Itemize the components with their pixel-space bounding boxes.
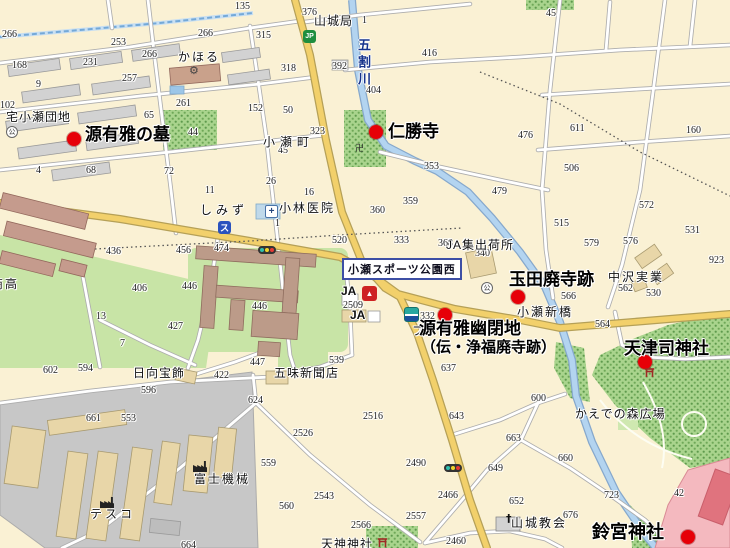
map-number-label: 446 [252, 302, 267, 313]
map-number-label: 447 [250, 358, 265, 369]
map-number-label: 474 [214, 244, 229, 255]
map-number-label: 333 [394, 236, 409, 247]
church-cross-icon: † [506, 512, 512, 525]
map-number-label: 624 [248, 396, 263, 407]
poi-label: 玉田廃寺跡 [509, 271, 594, 289]
poi-label: 天津司神社 [624, 340, 709, 358]
traffic-signal-icon [258, 246, 276, 254]
map-number-label: 1 [362, 16, 367, 27]
bank-store-icon [404, 307, 419, 322]
map-place-label: 小瀬新橋 [517, 306, 573, 319]
map-place-label: 山城局 [314, 15, 353, 28]
community-center-icon: 公 [6, 126, 18, 138]
map-number-label: 479 [492, 187, 507, 198]
poi-marker[interactable] [511, 290, 525, 304]
map-viewport[interactable]: 1352662532662662312571689102261654468724… [0, 0, 730, 548]
map-number-label: 26 [266, 177, 276, 188]
jp-post-bank-icon: JP [303, 30, 316, 43]
map-number-label: 652 [509, 497, 524, 508]
map-number-label: 611 [570, 124, 585, 135]
map-number-label: 353 [424, 162, 439, 173]
map-place-label: JA [341, 285, 356, 298]
ja-store-icon: ▲ [362, 286, 377, 301]
map-number-label: 68 [86, 166, 96, 177]
shop-su-icon: ス [218, 221, 231, 234]
map-number-label: 392 [332, 62, 347, 73]
map-number-label: 476 [518, 131, 533, 142]
map-number-label: 168 [12, 61, 27, 72]
poi-label: 源有雅幽閉地 [419, 320, 521, 338]
map-number-label: 661 [86, 414, 101, 425]
map-number-label: 13 [96, 312, 106, 323]
map-number-label: 446 [182, 282, 197, 293]
map-number-label: 360 [370, 206, 385, 217]
map-number-label: 564 [595, 320, 610, 331]
poi-marker[interactable] [681, 530, 695, 544]
factory-gear-icon: ⚙ [189, 64, 199, 77]
map-number-label: 2466 [438, 491, 458, 502]
poi-marker[interactable] [67, 132, 81, 146]
community-center-icon: 公 [481, 282, 493, 294]
map-number-label: 531 [685, 226, 700, 237]
map-place-label: 中沢実業 [608, 271, 664, 284]
map-number-label: 923 [709, 256, 724, 267]
map-number-label: 663 [506, 434, 521, 445]
map-number-label: 4 [36, 166, 41, 177]
map-place-label: 日向宝飾 [133, 367, 185, 380]
map-number-label: 562 [618, 284, 633, 295]
map-place-label: 小林医院 [279, 202, 335, 215]
map-place-label: かえでの森広場 [575, 408, 666, 421]
map-place-label: 山城教会 [511, 517, 567, 530]
map-place-label: かほる [178, 51, 220, 64]
map-number-label: 2566 [351, 521, 371, 532]
map-place-label: JA集出荷所 [446, 239, 514, 252]
map-number-label: 427 [168, 322, 183, 333]
poi-label: 源有雅の墓 [85, 126, 170, 144]
map-number-label: 9 [36, 80, 41, 91]
map-number-label: 2526 [293, 429, 313, 440]
map-number-label: 643 [449, 412, 464, 423]
map-number-label: 456 [176, 246, 191, 257]
map-number-label: 72 [164, 167, 174, 178]
map-number-label: 723 [604, 491, 619, 502]
poi-marker[interactable] [369, 125, 383, 139]
map-number-label: 416 [422, 49, 437, 60]
map-number-label: 160 [686, 126, 701, 137]
map-place-label: 商高 [0, 278, 19, 291]
map-place-label: JA [350, 309, 365, 322]
map-number-label: 422 [214, 371, 229, 382]
map-place-label: 宅小瀬団地 [6, 111, 71, 124]
map-number-label: 16 [304, 188, 314, 199]
map-number-label: 2543 [314, 492, 334, 503]
map-number-label: 406 [132, 284, 147, 295]
map-number-label: 506 [564, 164, 579, 175]
map-number-label: 637 [441, 364, 456, 375]
map-number-label: 596 [141, 386, 156, 397]
map-number-label: 50 [283, 106, 293, 117]
map-number-label: 530 [646, 289, 661, 300]
map-number-label: 602 [43, 366, 58, 377]
map-number-label: 257 [122, 74, 137, 85]
temple-manji-icon: 卍 [355, 141, 364, 154]
map-number-label: 318 [281, 64, 296, 75]
map-number-label: 664 [181, 541, 196, 548]
map-number-label: 436 [106, 247, 121, 258]
map-number-label: 152 [248, 104, 263, 115]
map-number-label: 515 [554, 219, 569, 230]
map-number-label: 44 [188, 128, 198, 139]
map-number-label: 553 [121, 414, 136, 425]
map-number-label: 65 [144, 111, 154, 122]
map-number-label: 266 [142, 50, 157, 61]
map-number-label: 572 [639, 201, 654, 212]
map-number-label: 231 [83, 58, 98, 69]
map-number-label: 539 [329, 356, 344, 367]
poi-label-sub: （伝・浄福廃寺跡） [421, 340, 556, 356]
map-number-label: 11 [205, 186, 215, 197]
traffic-signal-icon [444, 464, 462, 472]
map-number-label: 315 [256, 31, 271, 42]
map-number-label: 1 [275, 219, 280, 230]
map-number-label: 520 [332, 236, 347, 247]
map-place-label: 天神神社 [321, 538, 373, 548]
map-number-label: 576 [623, 237, 638, 248]
map-number-label: 559 [261, 459, 276, 470]
map-number-label: 2516 [363, 412, 383, 423]
map-place-label: 五味新聞店 [274, 367, 339, 380]
map-number-label: 2460 [446, 537, 466, 548]
map-number-label: 2557 [406, 512, 426, 523]
torii-icon [377, 537, 388, 547]
map-number-label: 7 [120, 339, 125, 350]
map-number-label: 359 [403, 197, 418, 208]
intersection-sign: 小瀬スポーツ公園西 [342, 258, 462, 280]
map-number-label: 253 [111, 38, 126, 49]
map-number-label: 42 [674, 489, 684, 500]
poi-label: 仁勝寺 [388, 123, 439, 141]
map-number-label: 600 [531, 394, 546, 405]
map-number-label: 2490 [406, 459, 426, 470]
map-place-label: 小瀬町 [263, 136, 314, 149]
torii-icon [644, 367, 655, 377]
map-place-label: テスコ [90, 508, 135, 521]
clinic-icon: + [265, 205, 278, 218]
map-number-label: 261 [176, 99, 191, 110]
river-name-label: 五割川 [354, 38, 373, 89]
map-number-label: 45 [546, 9, 556, 20]
map-number-label: 579 [584, 239, 599, 250]
map-number-label: 135 [235, 2, 250, 13]
map-number-label: 266 [2, 30, 17, 41]
map-number-label: 660 [558, 454, 573, 465]
map-number-label: 266 [198, 29, 213, 40]
map-number-label: 566 [561, 292, 576, 303]
map-number-label: 560 [279, 502, 294, 513]
map-place-label: 富士機械 [194, 473, 250, 486]
poi-label: 鈴宮神社 [592, 523, 664, 542]
map-place-label: しみず [200, 204, 248, 217]
map-number-label: 594 [78, 364, 93, 375]
map-number-label: 649 [488, 464, 503, 475]
